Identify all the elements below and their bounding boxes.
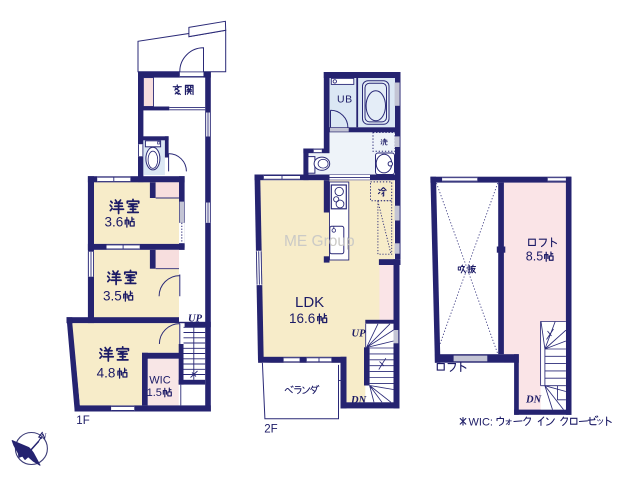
svg-text:LDK: LDK	[295, 294, 324, 311]
svg-text:DN: DN	[525, 395, 542, 406]
svg-text:UB: UB	[337, 94, 353, 106]
svg-text:1F: 1F	[76, 415, 89, 427]
svg-text:WIC:: WIC:	[469, 416, 493, 428]
svg-text:WIC: WIC	[149, 375, 170, 387]
svg-text:UP: UP	[352, 329, 367, 340]
svg-text:16.6: 16.6	[289, 311, 315, 326]
svg-text:UP: UP	[188, 313, 203, 324]
svg-text:3.5: 3.5	[103, 289, 122, 304]
svg-text:4.8: 4.8	[97, 366, 116, 381]
svg-text:2F: 2F	[264, 424, 277, 436]
svg-text:1.5: 1.5	[147, 387, 162, 399]
svg-text:ME Group: ME Group	[284, 233, 355, 250]
svg-text:8.5: 8.5	[526, 250, 543, 264]
svg-text:3.6: 3.6	[105, 215, 124, 230]
